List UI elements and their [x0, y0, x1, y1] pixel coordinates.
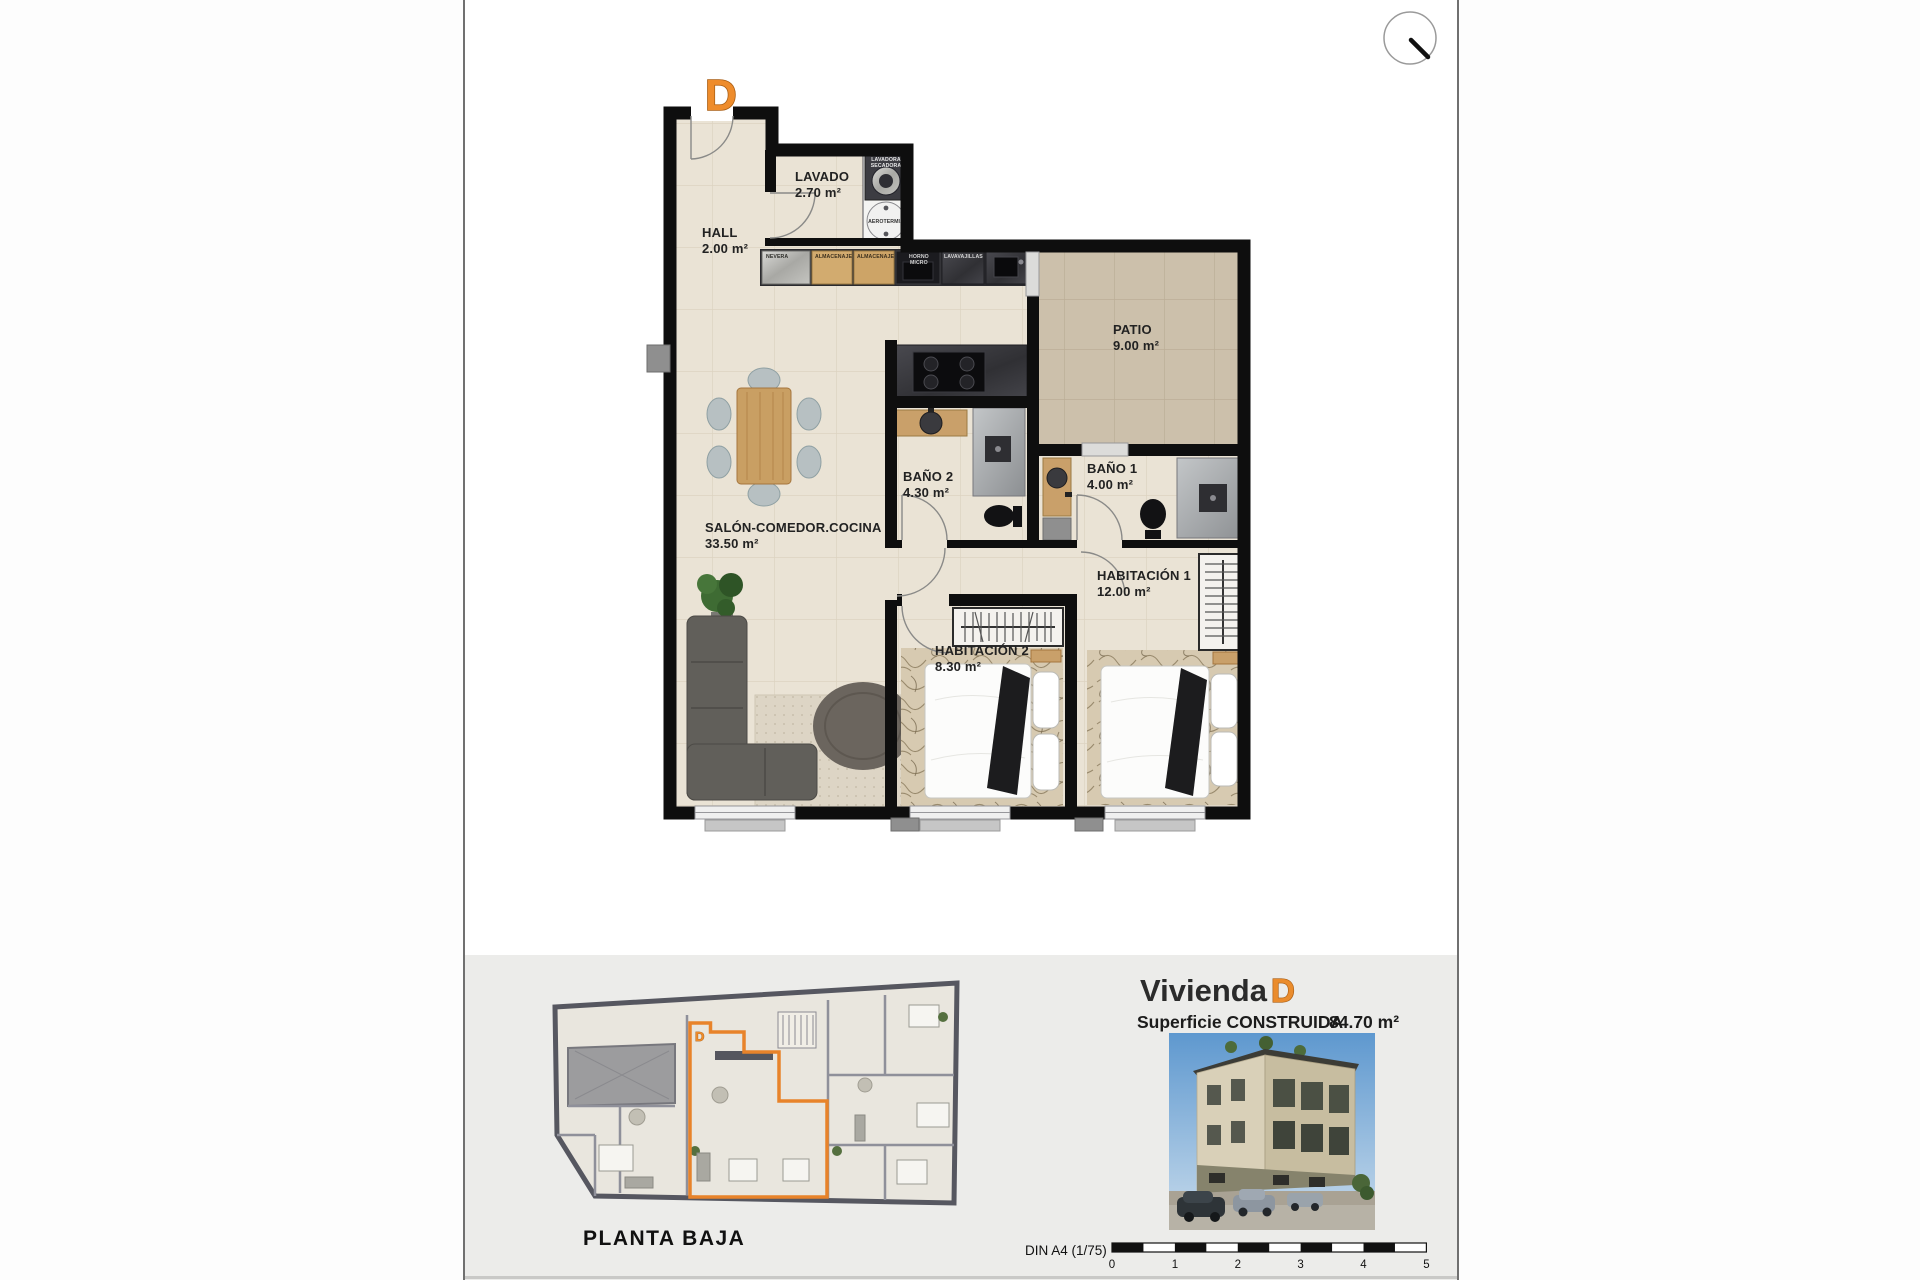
- unit-title-prefix: Vivienda: [1140, 973, 1268, 1008]
- lavado-name: LAVADO: [795, 169, 849, 184]
- surface-label: Superficie CONSTRUIDA: [1137, 1012, 1343, 1032]
- overview-unit-d-letter: D: [695, 1029, 704, 1044]
- salon-area: 33.50 m²: [705, 536, 759, 551]
- unit-letter: D: [705, 71, 737, 120]
- hall-area: 2.00 m²: [702, 241, 749, 256]
- hall-name: HALL: [702, 225, 737, 240]
- cabinet-1-label: ALMACENAJE: [815, 254, 852, 260]
- document-page: NEVERA ALMACENAJE ALMACENAJE HORNO MICRO…: [463, 0, 1459, 1280]
- habitacion2-area: 8.30 m²: [935, 659, 982, 674]
- wardrobe-habitacion2: [953, 608, 1063, 646]
- bano1-basin: [1047, 468, 1067, 488]
- kitchen-sink: [994, 257, 1018, 277]
- bed-habitacion1: [1101, 652, 1243, 798]
- salon-name: SALÓN-COMEDOR.COCINA: [705, 520, 882, 535]
- window-salon: [695, 806, 795, 831]
- patio-area: 9.00 m²: [1113, 338, 1160, 353]
- patio-name: PATIO: [1113, 322, 1152, 337]
- cooktop-peninsula: [891, 345, 1027, 399]
- main-plan-area: NEVERA ALMACENAJE ALMACENAJE HORNO MICRO…: [465, 0, 1457, 955]
- bano2-basin: [920, 412, 942, 434]
- footer-svg: D PLANTA BAJA Vivienda D Superficie CONS…: [465, 955, 1457, 1280]
- scale-tick-3: 3: [1297, 1259, 1303, 1271]
- scale-label: DIN A4 (1/75): [1025, 1243, 1107, 1258]
- bano2-toilet: [984, 505, 1014, 527]
- window-hab1: [1105, 806, 1205, 831]
- round-rug: [813, 682, 913, 770]
- lavado-area: 2.70 m²: [795, 185, 842, 200]
- scale-tick-4: 4: [1360, 1259, 1367, 1271]
- patio-glass-door: [1026, 252, 1039, 296]
- overview-stairs: [778, 1012, 816, 1048]
- footer-panel: D PLANTA BAJA Vivienda D Superficie CONS…: [465, 955, 1457, 1280]
- bano1-name: BAÑO 1: [1087, 461, 1137, 476]
- scale-tick-5: 5: [1423, 1259, 1429, 1271]
- utility-box-left: [647, 345, 670, 372]
- scale-tick-0: 0: [1109, 1259, 1115, 1271]
- scale-tick-2: 2: [1235, 1259, 1241, 1271]
- washer-label-2: SECADORA: [871, 163, 902, 169]
- habitacion2-name: HABITACIÓN 2: [935, 643, 1029, 658]
- bano2-area: 4.30 m²: [903, 485, 950, 500]
- oven-label-2: MICRO: [910, 260, 928, 266]
- window-hab2: [910, 806, 1010, 831]
- surface-value: 84.70 m²: [1329, 1012, 1399, 1032]
- habitacion1-name: HABITACIÓN 1: [1097, 568, 1191, 583]
- scale-tick-1: 1: [1172, 1259, 1178, 1271]
- kitchen-counter: NEVERA ALMACENAJE ALMACENAJE HORNO MICRO…: [760, 249, 1027, 286]
- floorplan-svg: NEVERA ALMACENAJE ALMACENAJE HORNO MICRO…: [465, 0, 1457, 955]
- bano1-area: 4.00 m²: [1087, 477, 1134, 492]
- building-photo: [1169, 1033, 1375, 1230]
- floorplan-sheet: NEVERA ALMACENAJE ALMACENAJE HORNO MICRO…: [0, 0, 1920, 1280]
- dishwasher-label: LAVAVAJILLAS: [944, 254, 983, 260]
- overview-plan: D: [555, 983, 957, 1203]
- fridge-label: NEVERA: [766, 254, 788, 260]
- bano2-name: BAÑO 2: [903, 469, 953, 484]
- patio-window: [1082, 443, 1128, 456]
- habitacion1-area: 12.00 m²: [1097, 584, 1151, 599]
- overview-title: PLANTA BAJA: [583, 1227, 745, 1250]
- aerotermia-label: AEROTERMIA: [868, 219, 904, 225]
- unit-title-letter: D: [1271, 972, 1295, 1009]
- cabinet-2-label: ALMACENAJE: [857, 254, 894, 260]
- bano1-toilet: [1140, 499, 1166, 529]
- north-indicator-icon: [1384, 12, 1436, 64]
